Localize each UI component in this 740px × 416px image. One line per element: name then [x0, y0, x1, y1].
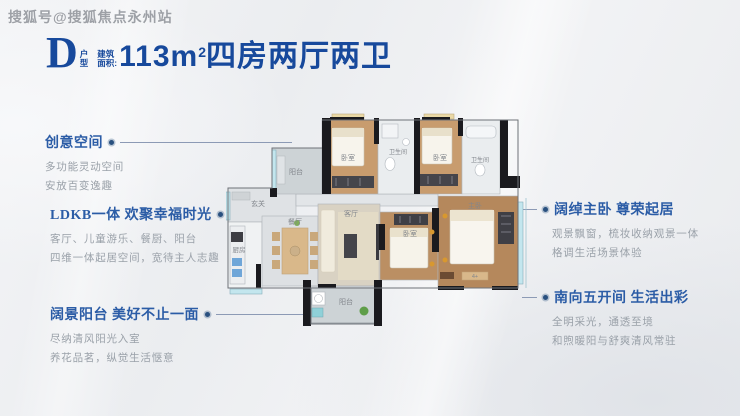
room-label-bedroom1: 卧室 [341, 153, 355, 162]
plan-type-letter: D [46, 37, 78, 69]
annotation-body: 观景飘窗，梳妆收纳观景一体 格调生活场景体验 [552, 225, 699, 263]
watermark: 搜狐号@搜狐焦点永州站 [8, 7, 173, 27]
annotation-body: 全明采光，通透至境 和煦暖阳与舒爽清风常驻 [552, 313, 689, 351]
connector-dot-icon [543, 295, 548, 300]
annotation-south-facing: 南向五开间 生活出彩 全明采光，通透至境 和煦暖阳与舒爽清风常驻 [522, 287, 689, 351]
annotation-title: 阔景阳台 美好不止一面 [50, 304, 199, 324]
room-label-bedroom2: 卧室 [433, 153, 447, 162]
room-label-bedroom-south: 卧室 [403, 229, 417, 238]
floorplan: 阳台 卧室 卫生间 卧室 卫生间 玄关 厨房 餐厅 客厅 卧室 主卧 阳台 4+ [226, 112, 528, 326]
room-label-bath2: 卫生间 [471, 156, 489, 164]
connector-dot-icon [218, 212, 223, 217]
page-title: D 户 型 建筑 面积: 113m2四房两厅两卫 [46, 37, 392, 69]
room-label-dining: 餐厅 [288, 217, 302, 226]
room-label-balcony-bottom: 阳台 [339, 297, 353, 306]
room-label-balcony-top: 阳台 [289, 167, 303, 176]
annotation-title: 阔绰主卧 尊荣起居 [554, 199, 674, 219]
connector-dot-icon [109, 140, 114, 145]
plan-type-suffix: 户 型 [80, 50, 89, 69]
annotation-title: 创意空间 [45, 132, 103, 152]
room-label-master: 主卧 [468, 201, 482, 210]
connector-dot-icon [543, 207, 548, 212]
room-label-entry: 玄关 [251, 199, 265, 208]
annotation-title: 南向五开间 生活出彩 [554, 287, 689, 307]
area-and-rooms: 113m2四房两厅两卫 [119, 45, 392, 69]
room-label-kitchen: 厨房 [233, 245, 246, 254]
annotation-body: 尽纳清风阳光入室 养花品茗，纵觉生活惬意 [50, 330, 336, 368]
area-label: 建筑 面积: [97, 50, 117, 69]
annotation-master-bedroom: 阔绰主卧 尊荣起居 观景飘窗，梳妆收纳观景一体 格调生活场景体验 [522, 199, 699, 263]
room-label-bath1: 卫生间 [389, 148, 407, 156]
connector-dot-icon [205, 312, 210, 317]
page: 搜狐号@搜狐焦点永州站 D 户 型 建筑 面积: 113m2四房两厅两卫 创意空… [0, 0, 740, 416]
room-label-living: 客厅 [344, 209, 358, 218]
master-tag: 4+ [472, 274, 478, 280]
annotation-title: LDKB一体 欢聚幸福时光 [50, 204, 212, 224]
